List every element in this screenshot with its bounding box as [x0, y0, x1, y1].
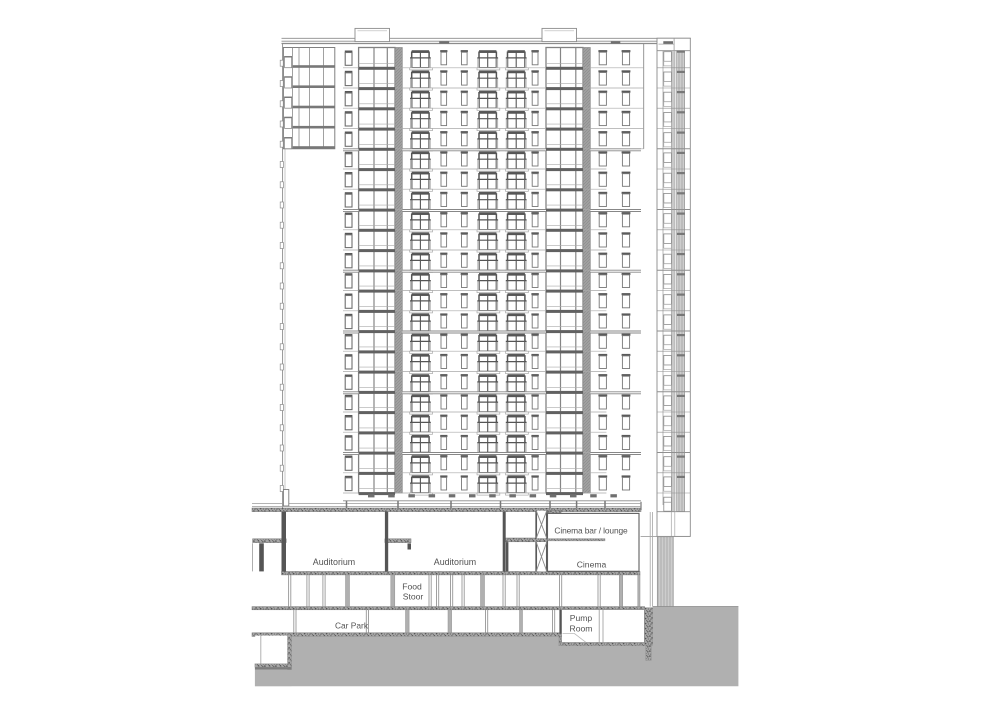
svg-text:Cinema bar / lounge: Cinema bar / lounge — [554, 526, 628, 536]
svg-text:Auditorium: Auditorium — [434, 557, 476, 567]
svg-text:Pump: Pump — [570, 613, 593, 623]
svg-text:Room: Room — [570, 624, 593, 634]
svg-text:Food: Food — [402, 582, 422, 592]
svg-text:Cinema: Cinema — [577, 559, 607, 569]
svg-text:Car Park: Car Park — [335, 620, 369, 630]
svg-text:Stoor: Stoor — [403, 591, 424, 601]
svg-text:Auditorium: Auditorium — [313, 557, 355, 567]
